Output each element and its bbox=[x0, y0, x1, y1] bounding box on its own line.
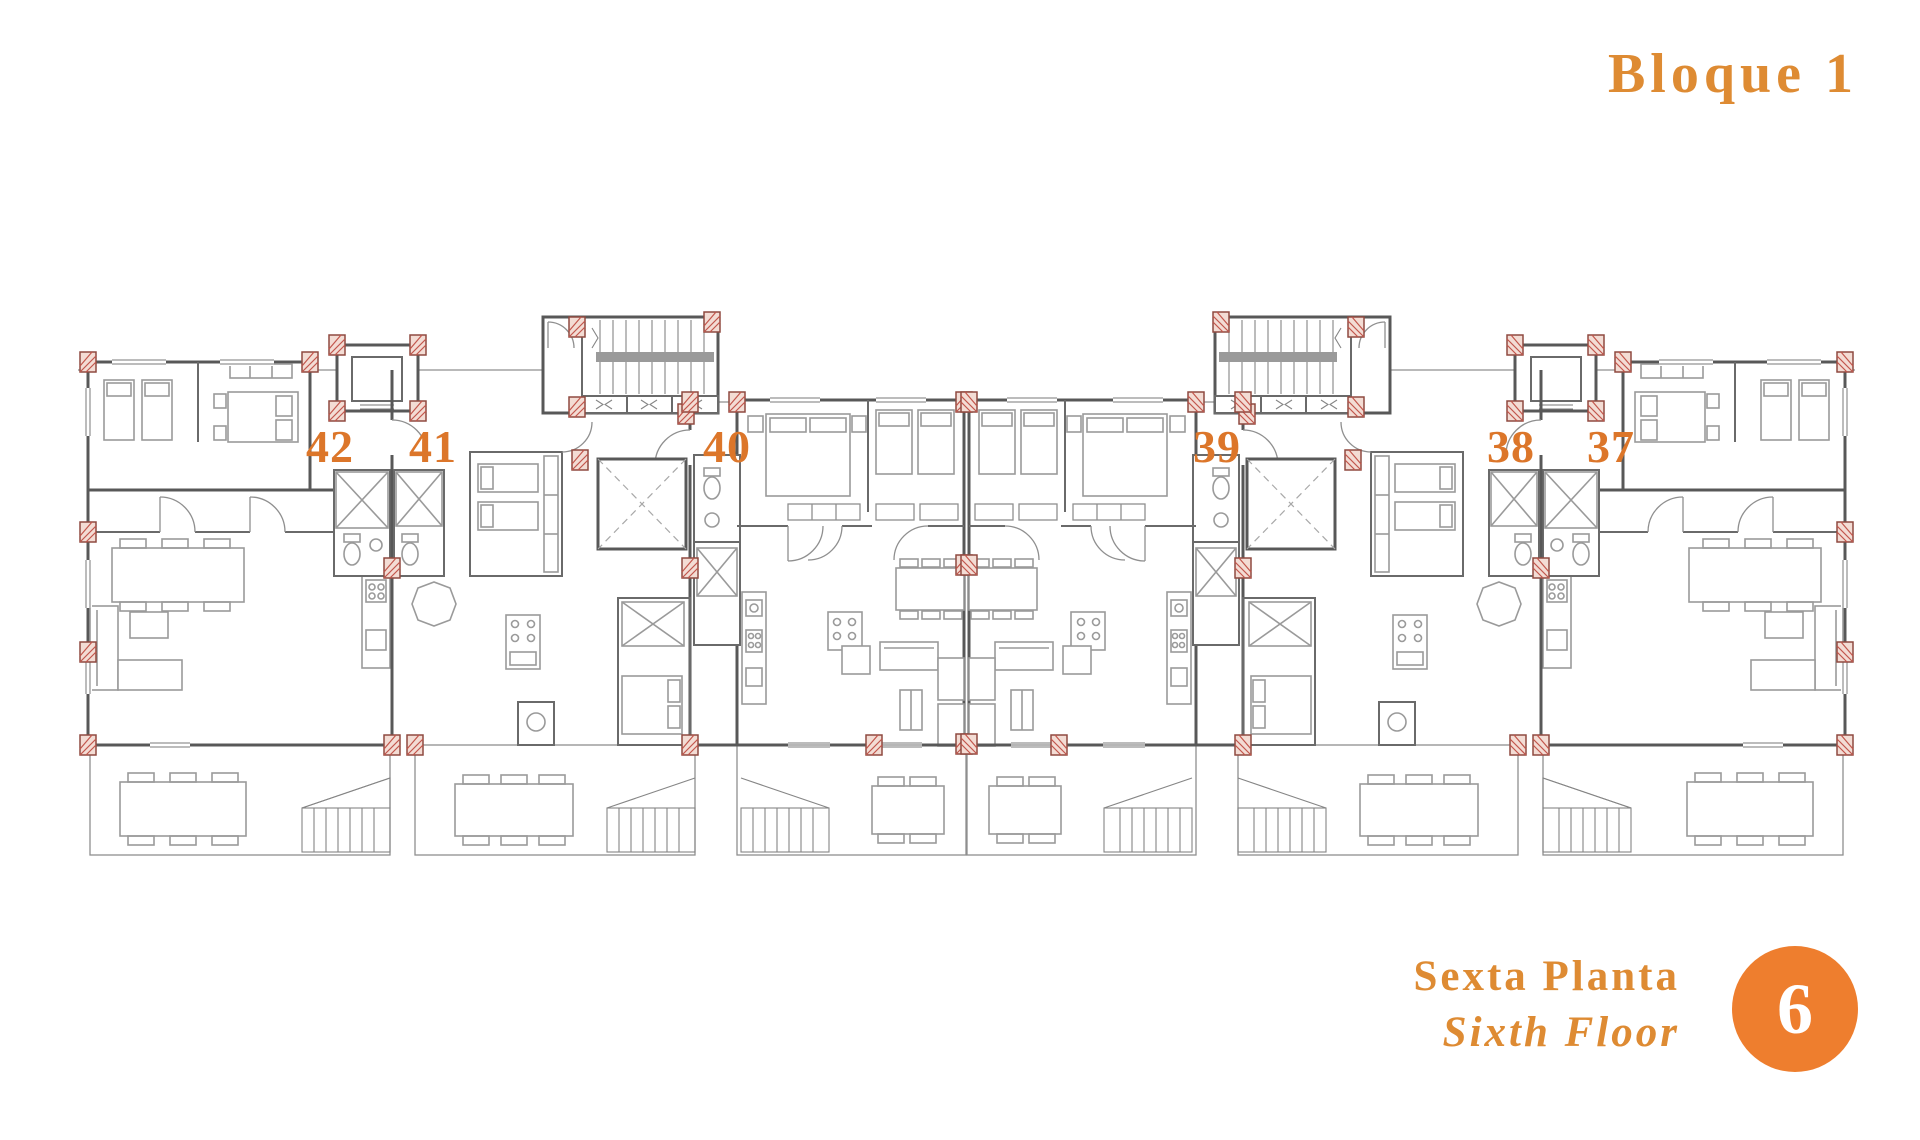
unit-label-39: 39 bbox=[1162, 420, 1272, 473]
unit-label-40: 40 bbox=[672, 420, 782, 473]
floor-number: 6 bbox=[1777, 973, 1813, 1045]
unit-label-41: 41 bbox=[378, 420, 488, 473]
unit-label-38: 38 bbox=[1456, 420, 1566, 473]
floor-plan-page: { "header": { "title": "Bloque 1", "acce… bbox=[0, 0, 1920, 1140]
floor-label-spanish: Sexta Planta bbox=[980, 952, 1680, 1001]
page-title: Bloque 1 bbox=[1258, 42, 1858, 106]
floor-number-badge: 6 bbox=[1732, 946, 1858, 1072]
unit-label-42: 42 bbox=[275, 420, 385, 473]
floor-label-english: Sixth Floor bbox=[980, 1008, 1680, 1057]
unit-label-37: 37 bbox=[1556, 420, 1666, 473]
